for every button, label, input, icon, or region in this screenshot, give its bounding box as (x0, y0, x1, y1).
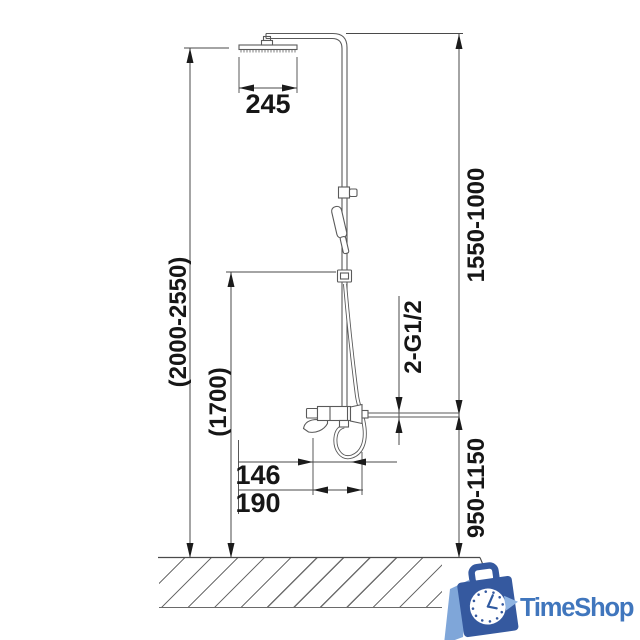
technical-drawing-page: 245 146 190 (2000-2550) (1700) 1550-1000… (0, 0, 640, 640)
timeshop-logo: TimeShop (444, 562, 634, 640)
floor-line (158, 558, 484, 567)
logo-text: TimeShop (520, 594, 634, 622)
label-mixer-height: 950-1150 (463, 438, 490, 538)
label-offset-small: 146 (235, 460, 280, 490)
dimension-lines (184, 34, 463, 559)
label-overall-height: (2000-2550) (165, 257, 192, 388)
hand-shower (331, 205, 352, 254)
shopping-bag-clock-icon (444, 562, 522, 640)
label-hand-shower-height: (1700) (205, 367, 232, 436)
shower-hose (335, 284, 364, 457)
hand-shower-holder (338, 270, 352, 282)
label-offset-large: 190 (235, 488, 280, 518)
label-thread-spec: 2-G1/2 (400, 300, 427, 373)
shower-column-outline (158, 34, 484, 567)
wall-mixer (304, 405, 460, 433)
label-head-width: 245 (245, 89, 290, 119)
dimension-labels: 245 146 190 (2000-2550) (1700) 1550-1000… (165, 89, 490, 538)
label-upper-riser: 1550-1000 (463, 168, 490, 283)
diverter-knob (339, 187, 358, 198)
shower-column-diagram: 245 146 190 (2000-2550) (1700) 1550-1000… (0, 0, 640, 640)
